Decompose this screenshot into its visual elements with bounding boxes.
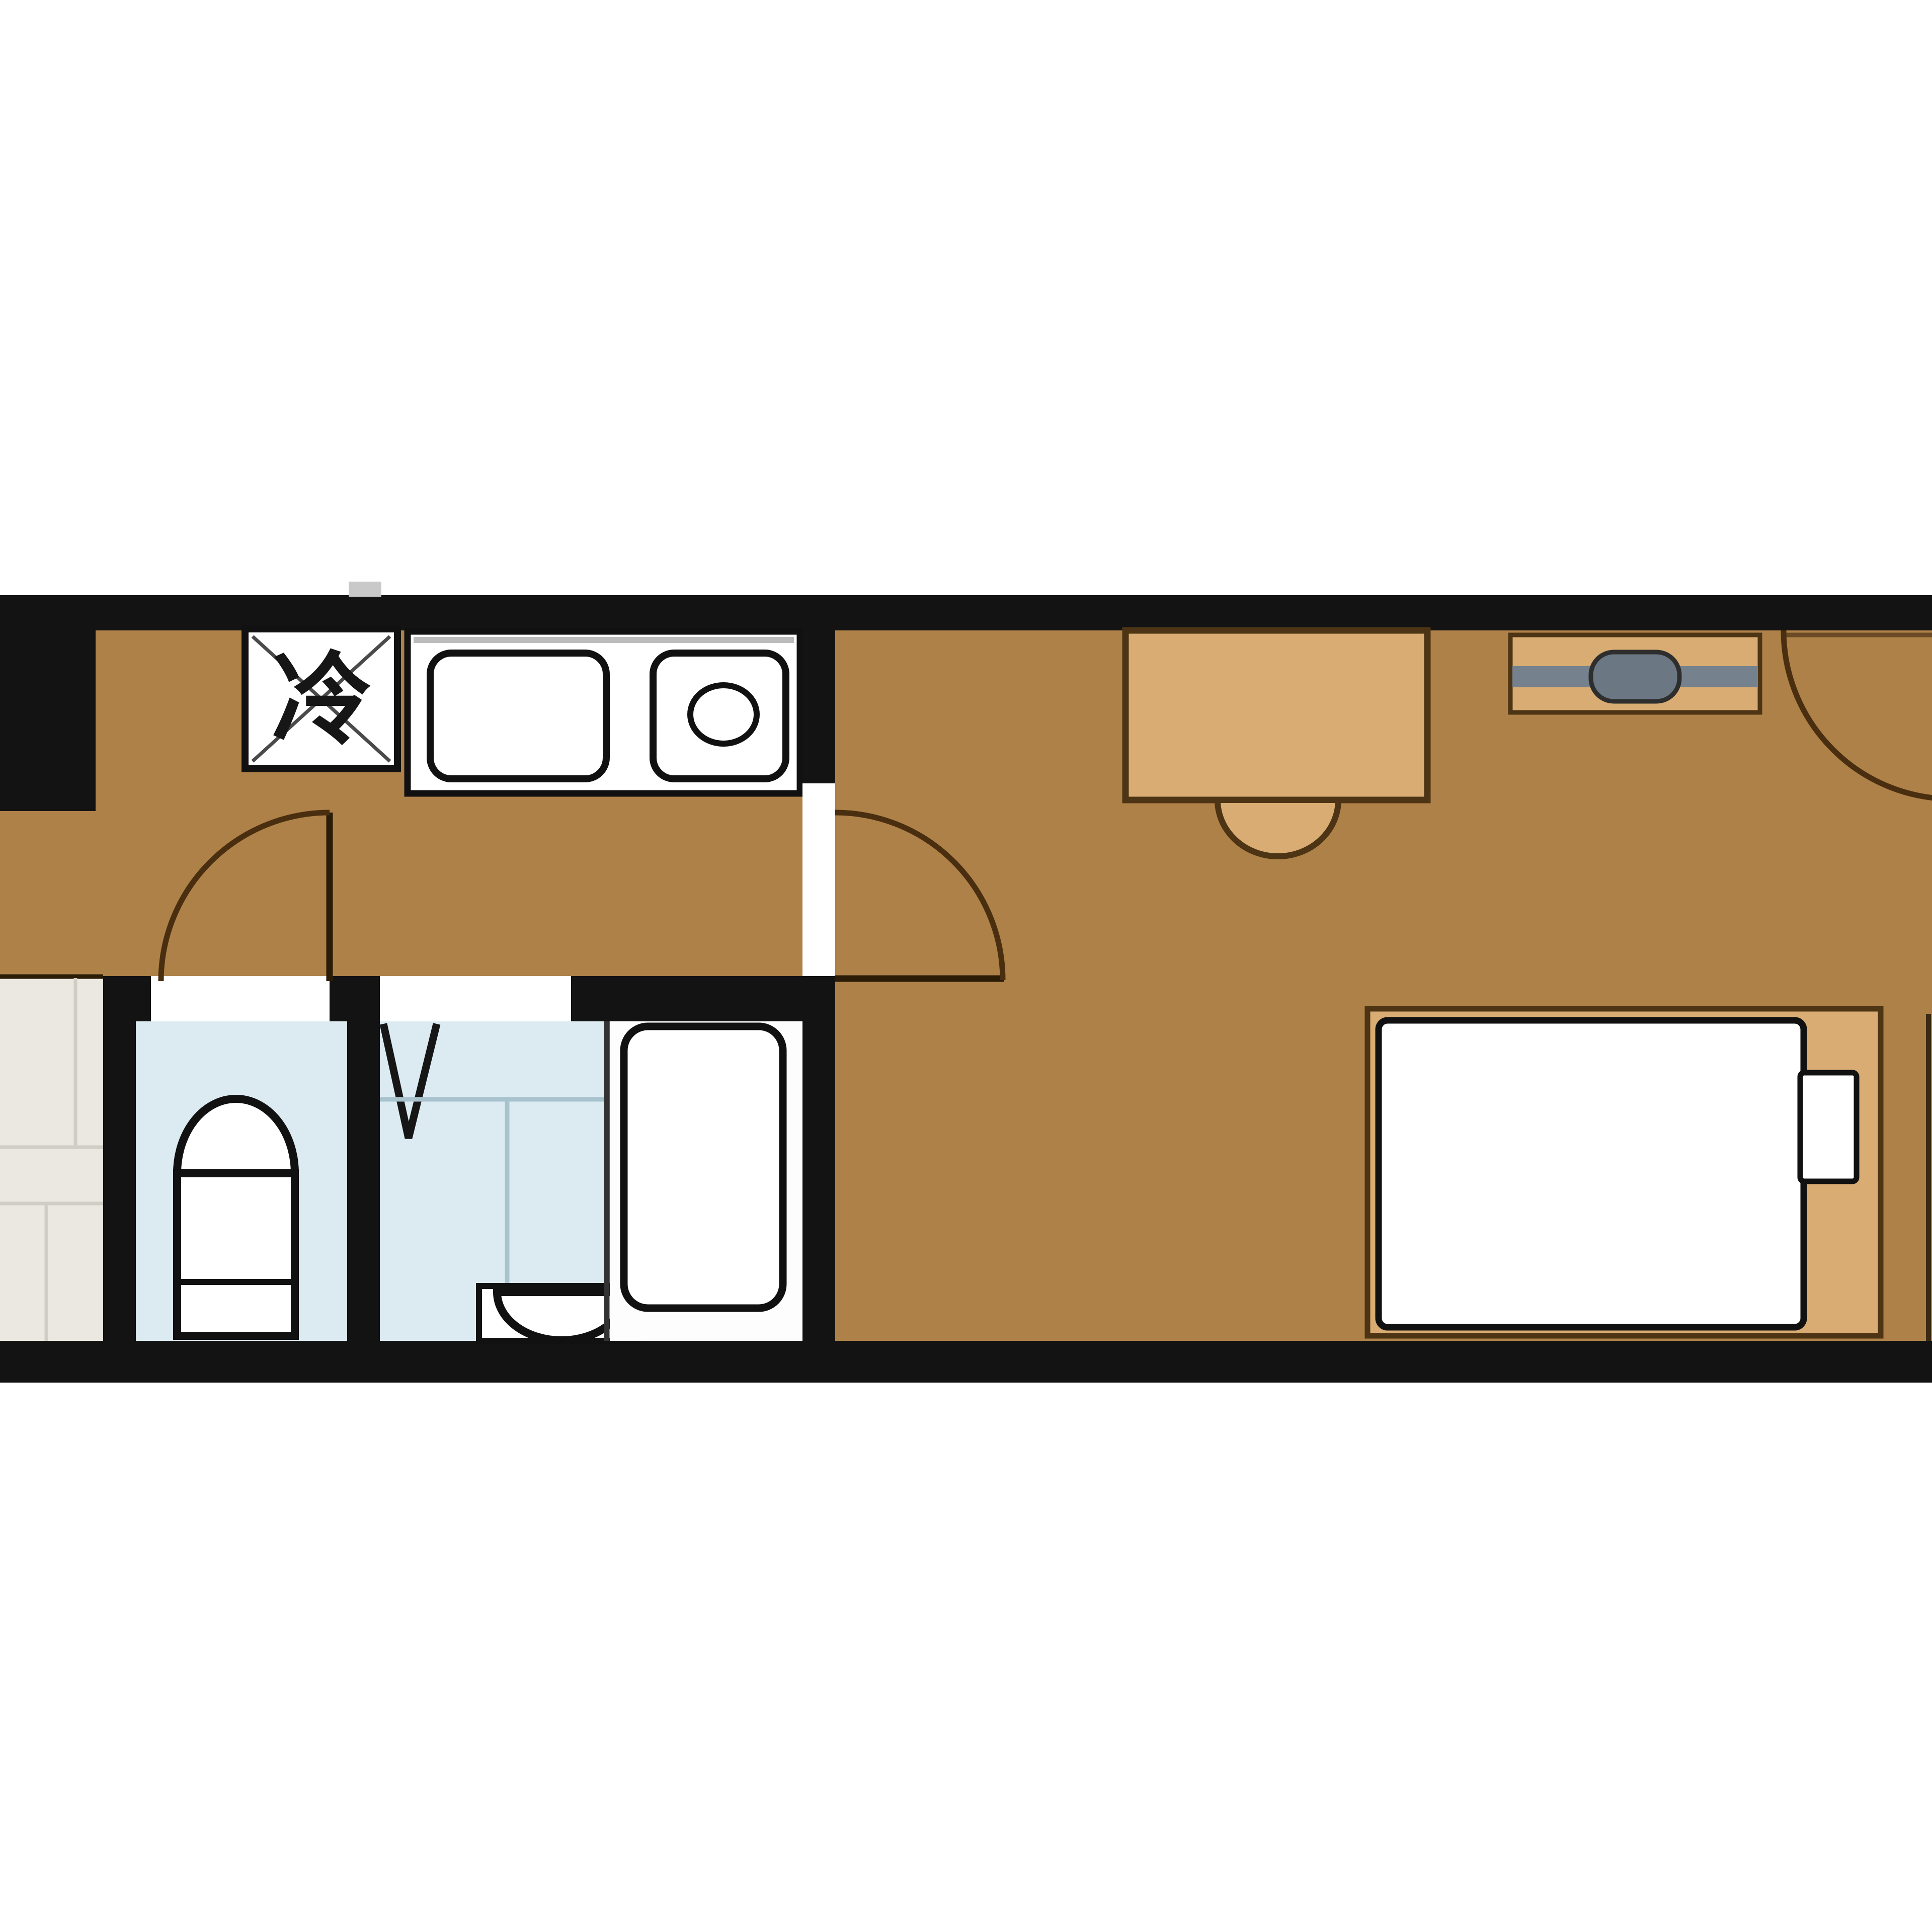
toilet-fixture (177, 1099, 295, 1336)
top-wall (0, 595, 1932, 630)
bottom-wall (0, 1341, 1932, 1383)
toilet-tank (177, 1173, 295, 1336)
bed (1367, 1009, 1881, 1336)
sanitary-right-wall (802, 976, 835, 1341)
toilet-door-opening (151, 976, 330, 1021)
entrance-tile-area (0, 977, 103, 1341)
partition-wall-upper (802, 595, 835, 783)
pillow (1800, 1073, 1857, 1181)
hanger-slider (1591, 652, 1679, 701)
floor-plan: 冷 (0, 0, 1932, 1932)
burner-icon (690, 685, 757, 744)
main-door-opening (802, 783, 835, 979)
entrance-tile-floor (0, 978, 103, 1341)
hanger-rack (1510, 635, 1760, 712)
pipe-shaft-block (0, 630, 96, 811)
sink-basin (430, 653, 606, 779)
bathtub (624, 1026, 783, 1308)
sanitary-left-wall (103, 976, 136, 1341)
toilet-washroom-wall (347, 976, 380, 1341)
kitchen-counter (408, 631, 800, 793)
kitchen-partition (802, 595, 835, 979)
refrigerator: 冷 (245, 629, 397, 769)
washroom-door-opening (380, 976, 571, 1021)
mattress (1379, 1020, 1804, 1327)
refrigerator-label: 冷 (272, 642, 372, 759)
desk-top (1125, 630, 1427, 800)
sanitary-block (103, 976, 835, 1341)
wall-notch (349, 582, 381, 597)
